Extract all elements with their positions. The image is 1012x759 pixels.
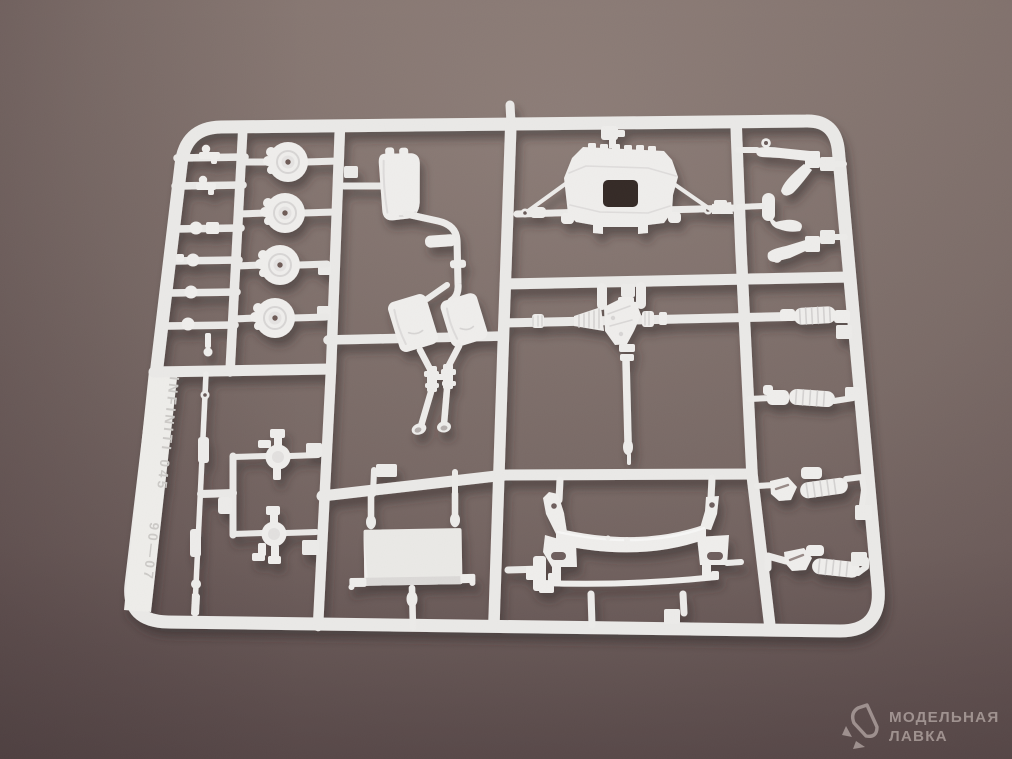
svg-text:ЛАВКА: ЛАВКА xyxy=(889,728,948,745)
svg-text:МОДЕЛЬНАЯ: МОДЕЛЬНАЯ xyxy=(889,709,999,726)
